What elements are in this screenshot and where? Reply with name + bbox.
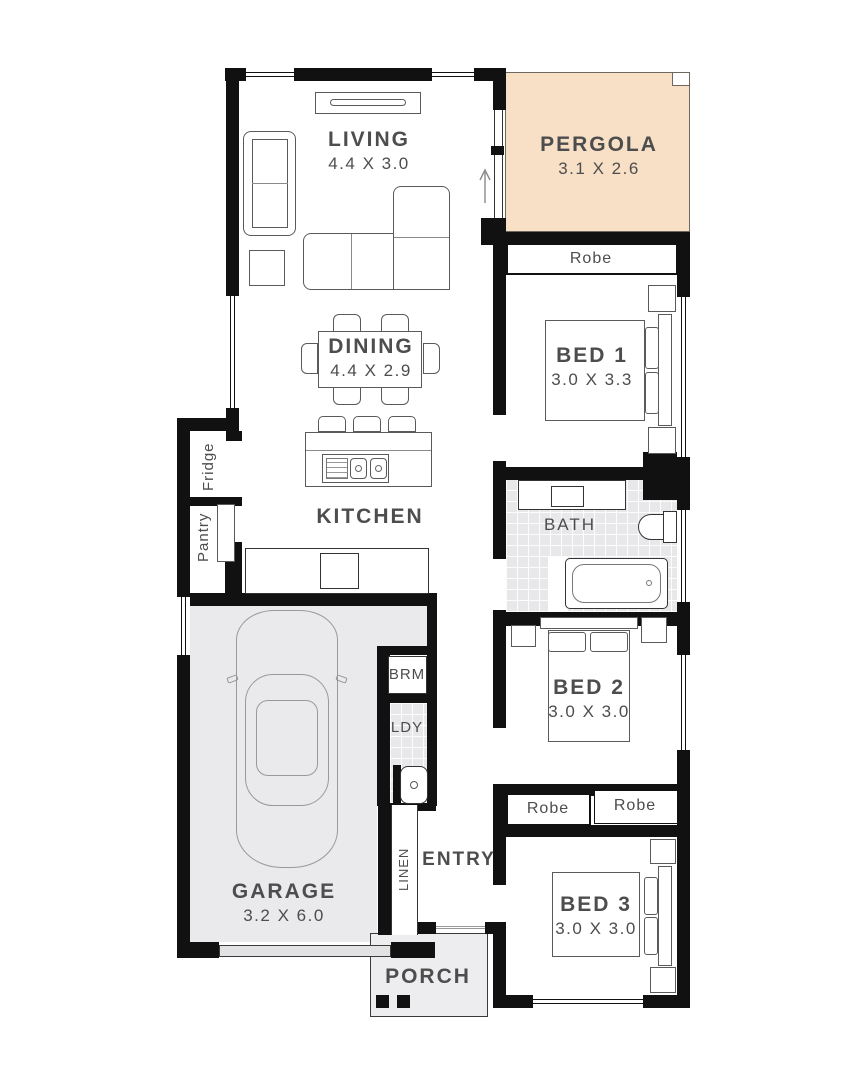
bath-name: BATH (544, 516, 596, 534)
wall (481, 218, 506, 245)
bedside-table (650, 967, 676, 993)
l-sofa-line (351, 234, 352, 289)
robe-bed1-name: Robe (570, 251, 612, 268)
living-dims: 4.4 X 3.0 (328, 155, 410, 173)
tv (330, 99, 406, 106)
laundry-strip-floor (377, 606, 427, 646)
bedside-table (650, 839, 676, 864)
wall (378, 805, 391, 935)
robe-bed3-right-name: Robe (614, 798, 656, 815)
wall (493, 68, 506, 110)
porch-door-threshold (436, 926, 485, 929)
bedside-table (511, 625, 536, 647)
pantry-shelf (217, 504, 235, 562)
robe-bed3-right-label: Robe (614, 798, 656, 815)
bedside-table (648, 427, 676, 454)
porch-label: PORCH (385, 966, 471, 988)
l-sofa-vertical (393, 186, 450, 290)
floor-plan: LIVING 4.4 X 3.0 PERGOLA 3.1 X 2.6 DININ… (0, 0, 855, 1072)
living-label: LIVING 4.4 X 3.0 (328, 129, 410, 173)
pergola-label: PERGOLA 3.1 X 2.6 (540, 134, 658, 178)
dining-label: DINING 4.4 X 2.9 (328, 336, 414, 380)
entry-label: ENTRY (422, 850, 496, 870)
wall (391, 942, 435, 958)
wall (493, 825, 690, 837)
wall (177, 418, 239, 431)
robe-bed1-label: Robe (570, 251, 612, 268)
island-bench-edge (306, 450, 431, 451)
window (177, 597, 190, 655)
bed3-headboard (658, 866, 672, 966)
bed3-label: BED 3 3.0 X 3.0 (555, 894, 637, 938)
bed3-dims: 3.0 X 3.0 (555, 920, 637, 938)
sofa-cushion-line (252, 183, 288, 184)
bedside-table (641, 617, 667, 643)
l-sofa-line (394, 237, 449, 238)
side-table (249, 250, 285, 286)
wall (493, 995, 533, 1008)
car-roof (256, 700, 318, 776)
robe-bed3-left-label: Robe (527, 801, 569, 818)
linen-label: LINEN (396, 838, 411, 900)
window (226, 296, 239, 408)
bed1-pillow (645, 372, 659, 414)
fridge-label: Fridge (200, 438, 217, 496)
vanity-basin (551, 486, 584, 507)
laundry-label: LDY (391, 720, 423, 736)
pergola-name: PERGOLA (540, 134, 658, 156)
wall (493, 245, 506, 415)
window (432, 68, 474, 81)
bed2-headboard (540, 617, 638, 629)
stool (353, 416, 381, 432)
stool (318, 416, 346, 432)
bed1-label: BED 1 3.0 X 3.3 (551, 345, 633, 389)
bed3-name: BED 3 (555, 894, 637, 916)
bathtub-drain (646, 580, 652, 586)
dining-chair (301, 343, 318, 374)
toilet-cistern (663, 511, 677, 543)
wall (427, 606, 437, 806)
entry-name: ENTRY (422, 850, 496, 870)
bed3-pillow (644, 877, 658, 915)
dining-chair (333, 387, 361, 405)
window (677, 655, 690, 750)
window (533, 995, 643, 1008)
bed1-pillow (645, 327, 659, 369)
garage-door (219, 945, 391, 957)
cooktop (320, 553, 359, 589)
pantry-label: Pantry (195, 508, 212, 566)
dining-name: DINING (328, 336, 414, 358)
wall (643, 452, 677, 500)
wall (177, 942, 219, 958)
bath-label: BATH (544, 516, 596, 534)
window (246, 68, 294, 81)
pergola-corner-notch (672, 72, 690, 86)
dining-chair (381, 314, 409, 332)
dining-chair (423, 343, 440, 374)
door-direction-arrow-icon (477, 165, 493, 205)
dining-chair (333, 314, 361, 332)
bed2-label: BED 2 3.0 X 3.0 (548, 677, 630, 721)
porch-name: PORCH (385, 966, 471, 988)
trough-drain (410, 781, 418, 789)
window (677, 510, 690, 602)
dining-dims: 4.4 X 2.9 (328, 362, 414, 380)
sliding-door (494, 110, 503, 218)
stool (388, 416, 416, 432)
kitchen-name: KITCHEN (316, 506, 423, 528)
porch-post (376, 995, 389, 1008)
bed2-name: BED 2 (548, 677, 630, 699)
garage-label: GARAGE 3.2 X 6.0 (232, 881, 336, 925)
bed1-dims: 3.0 X 3.3 (551, 371, 633, 389)
wall (190, 593, 437, 606)
garage-name: GARAGE (232, 881, 336, 903)
broom-name: BRM (389, 667, 425, 683)
wall (226, 431, 242, 441)
bed2-dims: 3.0 X 3.0 (548, 703, 630, 721)
bedside-table (648, 285, 676, 312)
bed2-pillow (548, 632, 586, 652)
bed3-pillow (644, 917, 658, 955)
kitchen-label: KITCHEN (316, 506, 423, 528)
porch-post (397, 995, 410, 1008)
wall (493, 610, 506, 728)
robe-bed3-left-name: Robe (527, 801, 569, 818)
broom-label: BRM (389, 667, 425, 683)
sink-tap (355, 465, 362, 472)
sliding-door-handle (491, 146, 504, 155)
bed1-headboard (658, 314, 672, 426)
pergola-dims: 3.1 X 2.6 (540, 160, 658, 178)
wall (485, 922, 506, 934)
living-name: LIVING (328, 129, 410, 151)
dining-chair (381, 387, 409, 405)
sink-tap (375, 465, 382, 472)
garage-dims: 3.2 X 6.0 (232, 907, 336, 925)
bed1-name: BED 1 (551, 345, 633, 367)
laundry-name: LDY (391, 720, 423, 736)
wall (643, 995, 690, 1008)
window (677, 297, 690, 457)
bed2-pillow (590, 632, 628, 652)
wall (177, 431, 190, 958)
sink-drainer (326, 458, 348, 479)
